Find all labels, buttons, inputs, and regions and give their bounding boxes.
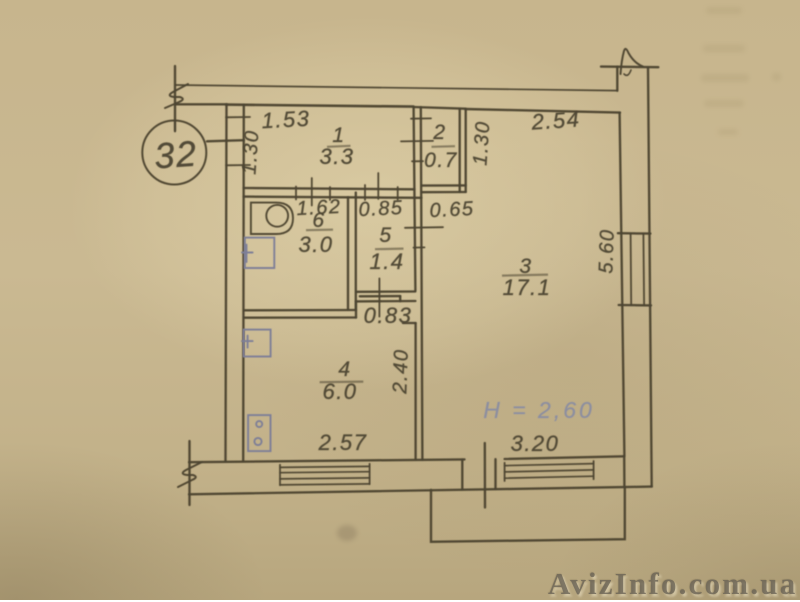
svg-text:0.85: 0.85 xyxy=(358,197,404,221)
svg-text:2.40: 2.40 xyxy=(389,348,413,395)
svg-text:0.7: 0.7 xyxy=(424,149,458,172)
svg-text:17.1: 17.1 xyxy=(503,275,552,300)
svg-text:2.57: 2.57 xyxy=(318,430,368,455)
svg-text:H = 2,60: H = 2,60 xyxy=(483,397,595,423)
svg-text:5.60: 5.60 xyxy=(595,228,619,274)
svg-text:3.3: 3.3 xyxy=(319,144,354,169)
svg-text:6.0: 6.0 xyxy=(322,379,357,404)
svg-text:6: 6 xyxy=(312,209,325,232)
svg-text:1.30: 1.30 xyxy=(238,129,263,175)
svg-text:3.20: 3.20 xyxy=(511,431,560,456)
svg-text:4: 4 xyxy=(338,358,351,381)
svg-text:0.83: 0.83 xyxy=(364,303,413,328)
svg-text:1.53: 1.53 xyxy=(261,106,311,134)
svg-text:5: 5 xyxy=(379,224,392,247)
svg-text:1.30: 1.30 xyxy=(469,120,494,166)
svg-text:32: 32 xyxy=(153,133,199,177)
svg-text:3.0: 3.0 xyxy=(298,232,333,257)
svg-text:2.54: 2.54 xyxy=(530,106,581,134)
svg-text:1.4: 1.4 xyxy=(369,249,404,274)
svg-text:0.65: 0.65 xyxy=(429,198,475,222)
svg-text:2: 2 xyxy=(432,121,446,144)
